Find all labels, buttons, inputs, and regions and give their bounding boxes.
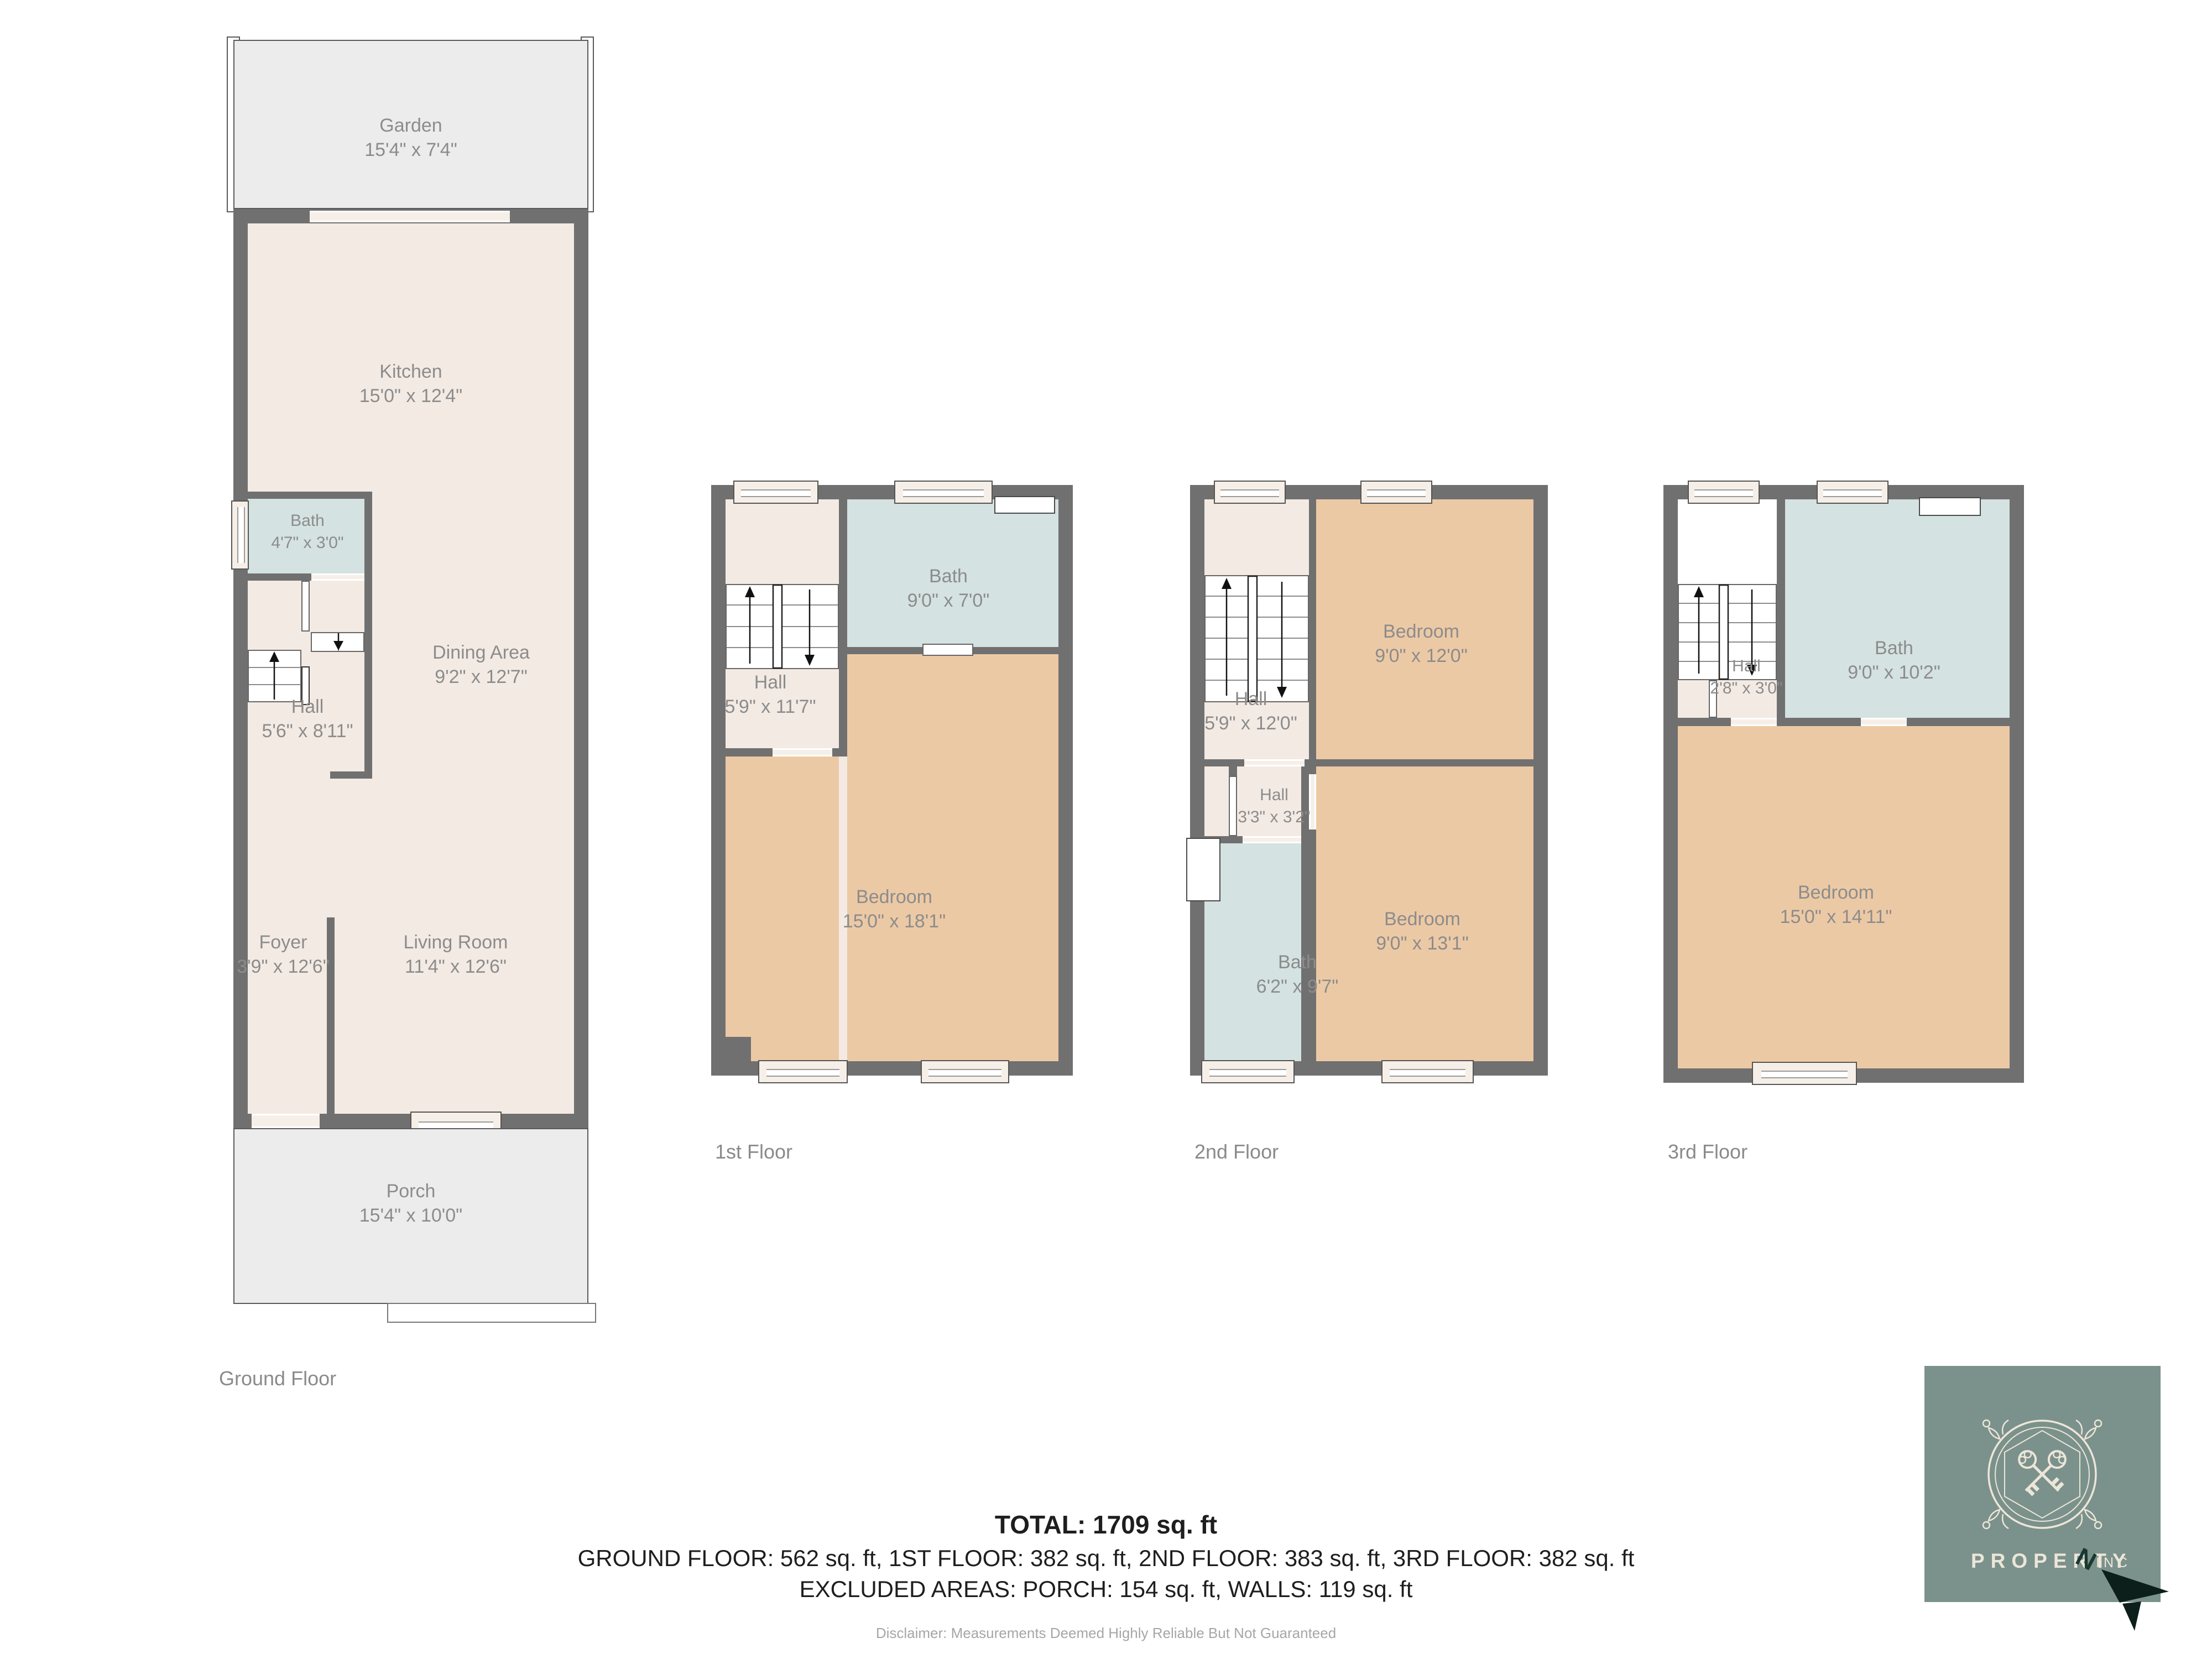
- window-icon: [921, 1060, 1009, 1083]
- room-label: Foyer3'9" x 12'6": [237, 930, 330, 979]
- hall-bath-wall: [839, 499, 847, 647]
- room-label: Hall5'9" x 11'7": [724, 670, 816, 719]
- room-label: Hall3'3" x 3'2": [1238, 784, 1310, 828]
- bath-recess: [1919, 497, 1981, 516]
- room-bath-third: [1785, 499, 2010, 718]
- window-icon: [1214, 481, 1286, 504]
- window-icon: [1752, 1062, 1857, 1085]
- window-icon: [1817, 481, 1888, 504]
- patio-opening: [310, 211, 510, 222]
- window-icon: [1381, 1060, 1474, 1083]
- window-icon: [733, 481, 818, 504]
- bath-window-icon: [231, 500, 249, 570]
- room-label: Bedroom9'0" x 13'1": [1376, 907, 1469, 956]
- hall-door: [1244, 759, 1305, 766]
- floorplan-sheet: Garden15'4" x 7'4" Kitchen15'0" x 12'4" …: [0, 0, 2212, 1659]
- window-icon: [1688, 481, 1760, 504]
- bath-recess: [1186, 838, 1220, 901]
- divider-top: [1309, 485, 1316, 766]
- window-icon: [1360, 481, 1432, 504]
- room-label: Hall2'8" x 3'0": [1710, 655, 1782, 700]
- bath-recess: [994, 496, 1055, 514]
- disclaimer-text: Disclaimer: Measurements Deemed Highly R…: [0, 1625, 2212, 1642]
- excluded-areas-line: EXCLUDED AREAS: PORCH: 154 sq. ft, WALLS…: [0, 1576, 2212, 1603]
- caption-first-floor: 1st Floor: [715, 1140, 792, 1164]
- porch-step: [387, 1303, 596, 1323]
- front-door: [252, 1114, 320, 1128]
- hall-door: [773, 748, 832, 757]
- bath-bottom-wall-right: [1907, 718, 2010, 726]
- room-label: Living Room11'4" x 12'6": [404, 930, 508, 979]
- north-arrow-icon: [2096, 1564, 2179, 1636]
- room-label: Kitchen15'0" x 12'4": [359, 359, 462, 408]
- room-label: Dining Area9'2" x 12'7": [432, 640, 530, 689]
- hall-stub-wall: [330, 771, 372, 779]
- room-label: Garden15'4" x 7'4": [364, 113, 457, 162]
- total-area-text: TOTAL: 1709 sq. ft: [0, 1510, 2212, 1540]
- room-label: Bath6'2" x 9'7": [1256, 950, 1339, 999]
- room-label: Bath9'0" x 7'0": [907, 564, 990, 613]
- room-label: Bedroom15'0" x 14'11": [1780, 880, 1892, 929]
- room-label: Hall5'6" x 8'11": [262, 695, 353, 743]
- bath-door: [922, 644, 973, 656]
- hall-dining-wall: [364, 492, 372, 779]
- floor-areas-line: GROUND FLOOR: 562 sq. ft, 1ST FLOOR: 382…: [0, 1545, 2212, 1572]
- room-label: Bedroom9'0" x 12'0": [1375, 619, 1468, 668]
- stairs-down-icon: [311, 632, 364, 652]
- window-icon: [894, 481, 993, 504]
- hall-door-leaf: [301, 581, 310, 632]
- small-hall-post: [1229, 766, 1237, 776]
- divider-lower: [839, 647, 847, 757]
- area-summary: TOTAL: 1709 sq. ft: [0, 1510, 2212, 1540]
- room-label: Bedroom15'0" x 18'1": [843, 885, 946, 933]
- bath-door: [311, 573, 364, 581]
- window-icon: [1201, 1060, 1295, 1083]
- bath-door: [1861, 718, 1907, 726]
- hall-door: [1731, 718, 1777, 726]
- room-bedroom-first-left: [726, 757, 839, 1061]
- window-icon: [758, 1060, 848, 1083]
- mid-wall: [1190, 759, 1537, 766]
- room-label: Bath9'0" x 10'2": [1848, 636, 1940, 685]
- bath-bottom-wall: [233, 573, 311, 581]
- stairs-icon: [726, 584, 839, 669]
- room-label: Hall5'9" x 12'0": [1204, 687, 1297, 735]
- caption-ground-floor: Ground Floor: [219, 1367, 336, 1390]
- caption-third-floor: 3rd Floor: [1668, 1140, 1747, 1164]
- corner-notch: [726, 1037, 751, 1061]
- bath-top-wall: [248, 492, 372, 499]
- small-hall-door-leaf: [1229, 776, 1237, 836]
- room-label: Porch15'4" x 10'0": [359, 1179, 462, 1228]
- bath-door: [1243, 836, 1301, 843]
- room-label: Bath4'7" x 3'0": [271, 510, 343, 554]
- caption-second-floor: 2nd Floor: [1194, 1140, 1279, 1164]
- hall-bottom-wall: [1663, 718, 1731, 726]
- bath-bottom-wall-left: [1777, 718, 1861, 726]
- room-bedroom-first: [847, 654, 1058, 1061]
- stairs-icon: [1204, 575, 1309, 702]
